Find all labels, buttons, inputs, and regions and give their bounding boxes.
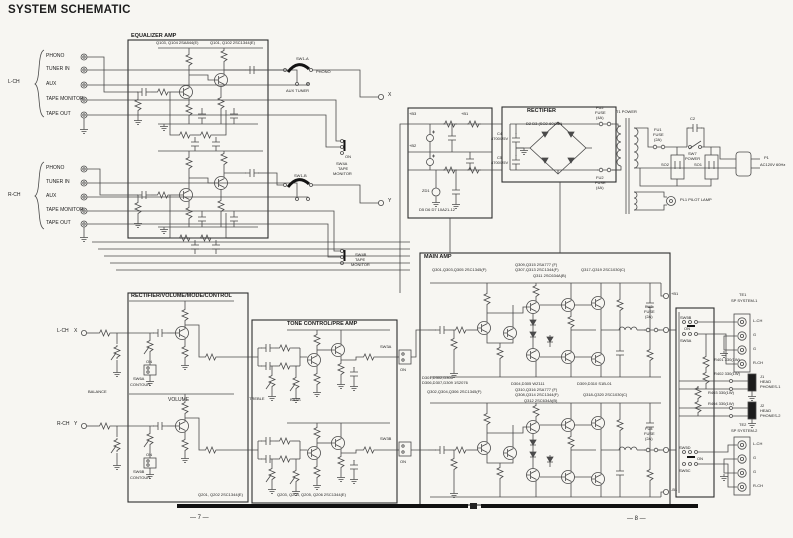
label-rail-b1: +B1 <box>461 112 468 116</box>
label-input-l-tapemon: TAPE MONITOR <box>46 97 84 102</box>
tone-channel-left <box>252 330 397 403</box>
label-sw1a-auxtuner: AUX TUNER <box>286 89 309 93</box>
label-input-l-tuner: TUNER IN <box>46 67 70 72</box>
label-te2-g2: G <box>753 470 756 474</box>
label-c2: C2 <box>690 117 695 121</box>
label-te2-g1: G <box>753 456 756 460</box>
label-sw3a: SW3A <box>380 345 391 349</box>
label-sw1a-phono: PHONO <box>316 70 331 74</box>
label-sw3a-on: ON <box>400 368 406 372</box>
label-sw5d: SW5D <box>679 446 691 450</box>
label-so2: SO2 <box>661 163 669 167</box>
label-te1-g2: G <box>753 347 756 351</box>
label-filter-diodes: D5 D6 D7 10A21-12 <box>419 208 455 212</box>
rectifier-bridge <box>510 122 621 174</box>
label-sw5b: SW5B <box>680 316 691 320</box>
label-r404: R404 330(1W) <box>708 402 734 406</box>
volume-title: RECTIFIER/VOLUME/MODE/CONTROL <box>131 294 232 300</box>
label-zd1: ZD1 <box>422 189 430 193</box>
label-input-r-tapeout: TAPE OUT <box>46 221 71 226</box>
label-input-l-phono: PHONO <box>46 54 64 59</box>
label-input-r-tuner: TUNER IN <box>46 180 70 185</box>
label-te1-rch: R-CH <box>753 361 763 365</box>
tone-title: TONE CONTROL/PRE AMP <box>287 322 357 328</box>
source-selector-switches <box>284 65 384 265</box>
main-amp-channel-left <box>428 283 661 378</box>
label-so1: SO1 <box>694 163 702 167</box>
label-vol-lch: L-CH <box>57 329 69 334</box>
label-r-channel: R-CH <box>8 193 21 198</box>
label-te2: TE2 <box>739 423 746 427</box>
label-sw5-on-top: ON <box>684 327 690 331</box>
schematic-page: SYSTEM SCHEMATIC L-CH R-CH PHONO TUNER I… <box>0 0 793 538</box>
label-input-l-aux: AUX <box>46 82 56 87</box>
volume-parts: Q201, Q202 2SC1344(E) <box>198 493 243 497</box>
main-parts-b7: Q308,Q314 2SC1344(F) <box>515 393 559 397</box>
label-treble: TREBLE <box>249 397 265 401</box>
label-sw4a-on: ON <box>345 155 351 159</box>
main-parts-t4: Q311 2SC634A(B) <box>533 274 566 278</box>
filter-switches <box>397 330 428 456</box>
label-p1-rating: AC120V 60Hz <box>760 163 785 167</box>
main-parts-b5: Q302,Q304,Q306 2SC1345(F) <box>427 390 481 394</box>
equalizer-title: EQUALIZER AMP <box>131 34 176 40</box>
main-parts-t5: Q317-Q319 2SC1030(C) <box>581 268 625 272</box>
main-parts-t1: Q301,Q303,Q305 2SC1345(F) <box>432 268 486 272</box>
label-bass: BASS <box>290 398 301 402</box>
tone-parts: Q203, Q204, Q205, Q206 2SC1344(E) <box>277 493 346 497</box>
main-parts-b3: D304,D305 WZ111 <box>511 382 545 386</box>
page-number-left: — 7 — <box>190 515 209 521</box>
label-input-r-tapemon: TAPE MONITOR <box>46 208 84 213</box>
main-parts-b4: D309,D310 S1B-01 <box>577 382 612 386</box>
label-r403: R403 330(1W) <box>708 391 734 395</box>
main-parts-b9: Q318-Q320 2SC1030(C) <box>583 393 627 397</box>
page-number-right: — 8 — <box>627 516 646 522</box>
label-input-l-tapeout: TAPE OUT <box>46 112 71 117</box>
label-sw5c: SW5C <box>679 469 691 473</box>
label-rail-b3: +B3 <box>409 112 416 116</box>
label-j2-phones: PHONES-2 <box>760 414 780 418</box>
label-sw1a: SW1-A <box>296 57 309 61</box>
label-contour-b-on: ON <box>146 453 152 457</box>
label-main-bplus: +B1 <box>671 292 678 296</box>
main-amp-title: MAIN AMP <box>424 255 452 261</box>
label-input-r-aux: AUX <box>46 194 56 199</box>
label-p1: P1 <box>764 156 769 160</box>
label-te2-rch: R-CH <box>753 484 763 488</box>
label-te1-lch: L-CH <box>753 319 762 323</box>
label-input-r-phono: PHONO <box>46 166 64 171</box>
equalizer-parts-a: Q103, Q104 2SA844(E) <box>156 41 198 45</box>
label-sw6a: SW6A <box>133 377 144 381</box>
label-fu1-amp: (2A) <box>654 138 662 142</box>
label-sw4a-monitor: MONITOR <box>333 172 352 176</box>
page-title: SYSTEM SCHEMATIC <box>8 5 131 17</box>
main-parts-b2: D306,D307,D309 1S2076 <box>422 381 468 385</box>
label-j1-phones: PHONES-1 <box>760 385 780 389</box>
main-parts-t3: Q307,Q313 2SC1344(F) <box>515 268 559 272</box>
label-volume: VOLUME <box>168 398 189 403</box>
label-te1: TE1 <box>739 293 746 297</box>
label-sw5-on-bot: ON <box>697 457 703 461</box>
label-fu2-top-amp: (4A) <box>596 116 604 120</box>
label-contour-a-on: ON <box>146 360 152 364</box>
equalizer-parts-b: Q101, Q102 2SC1344(E) <box>210 41 255 45</box>
label-r401: R401 330(1W) <box>714 358 740 362</box>
label-sw3b: SW3B <box>380 437 391 441</box>
label-sp-system1: SP SYSTEM-1 <box>731 299 757 303</box>
label-c4-value: 4700/25V <box>491 137 508 141</box>
label-vol-x: X <box>74 329 77 334</box>
label-fu4-amp: (2A) <box>645 437 653 441</box>
label-contour-b: CONTOUR <box>130 476 150 480</box>
label-l-channel: L-CH <box>8 80 20 85</box>
label-sw6b: SW6B <box>133 470 144 474</box>
label-sw5a: SW5A <box>680 339 691 343</box>
label-rail-b2: +B2 <box>409 144 416 148</box>
main-amp-channel-right <box>428 403 661 498</box>
label-fu3-amp: (2A) <box>645 315 653 319</box>
rectifier-title: RECTIFIER <box>527 109 556 115</box>
label-te2-lch: L-CH <box>753 442 762 446</box>
label-balance: BALANCE <box>88 390 107 394</box>
equalizer-channel-left <box>128 48 268 151</box>
label-c5-value: 4700/25V <box>491 161 508 165</box>
label-term-x: X <box>388 93 391 98</box>
label-sw7-power: POWER <box>685 157 700 161</box>
label-pilot-lamp: PL1 PILOT LAMP <box>680 198 712 202</box>
label-te1-g1: G <box>753 333 756 337</box>
label-r402: R402 330(1W) <box>714 372 740 376</box>
label-vol-rch: R-CH <box>57 422 70 427</box>
label-main-bminus: -B1 <box>671 488 677 492</box>
tone-channel-right <box>252 423 397 496</box>
rectifier-parts: D2 D3 (SO2-60)25N <box>526 122 562 126</box>
label-fu2-bot-amp: (4A) <box>596 186 604 190</box>
label-term-y: Y <box>388 199 391 204</box>
label-sw1b: SW1-B <box>294 174 307 178</box>
main-parts-b8: Q312 2SC634A(B) <box>524 399 557 403</box>
schematic-artwork <box>0 0 793 538</box>
label-contour-a: CONTOUR <box>130 383 150 387</box>
label-sw3b-on: ON <box>400 460 406 464</box>
label-sp-system2: SP SYSTEM-2 <box>731 429 757 433</box>
page-edge-bars <box>177 503 698 509</box>
label-vol-y: Y <box>74 422 77 427</box>
label-sw4b-monitor: MONITOR <box>351 263 370 267</box>
label-t1: T1 POWER <box>616 110 637 114</box>
